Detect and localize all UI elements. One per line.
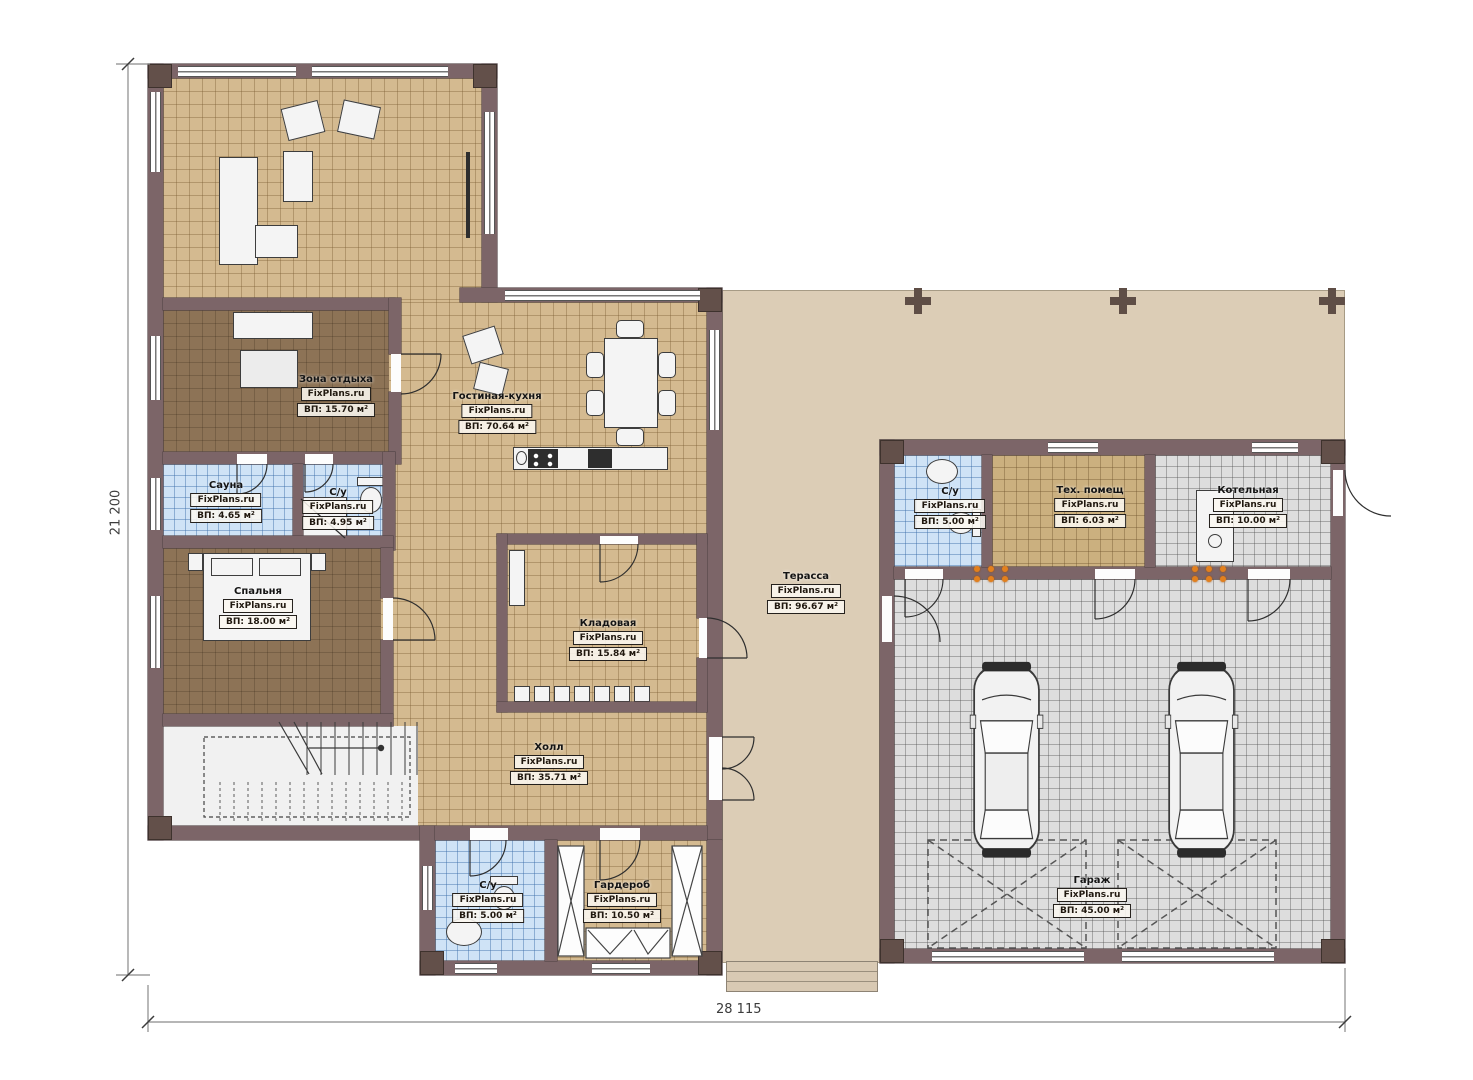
room-area: ВП: 5.00 м² (452, 909, 524, 923)
pillow (259, 558, 301, 576)
wall (497, 534, 507, 712)
room-label-tech: Тех. помещ FixPlans.ru ВП: 6.03 м² (1054, 485, 1126, 528)
sink (516, 451, 527, 465)
wall (163, 298, 395, 310)
room-label-bedroom: Спальня FixPlans.ru ВП: 18.00 м² (219, 586, 297, 629)
shelf (634, 686, 650, 702)
radiator-indicator (974, 566, 1008, 582)
column (473, 64, 497, 88)
window (932, 951, 1084, 962)
door-opening (882, 596, 892, 642)
room-label-hall: Холл FixPlans.ru ВП: 35.71 м² (510, 742, 588, 785)
brand-watermark: FixPlans.ru (1213, 498, 1284, 512)
window (1122, 951, 1274, 962)
brand-watermark: FixPlans.ru (191, 493, 262, 507)
room-name: С/у (452, 880, 524, 891)
nightstand (311, 553, 326, 571)
wall (1145, 455, 1155, 567)
room-name: Котельная (1209, 485, 1287, 496)
boiler-dial (1208, 534, 1222, 548)
door-opening (600, 828, 640, 840)
door-opening (600, 536, 638, 544)
brand-watermark: FixPlans.ru (1057, 888, 1128, 902)
window (592, 963, 650, 974)
brand-watermark: FixPlans.ru (303, 500, 374, 514)
chair (658, 390, 676, 416)
floor-plan-canvas: Зона отдыха FixPlans.ru ВП: 15.70 м² Гос… (0, 0, 1473, 1080)
room-area: ВП: 18.00 м² (219, 615, 297, 629)
door-opening (905, 569, 943, 579)
floor-living-top (163, 78, 482, 302)
chair (586, 352, 604, 378)
room-area: ВП: 15.70 м² (297, 403, 375, 417)
terrace-column (1110, 288, 1136, 314)
chair (616, 320, 644, 338)
floor-terrace-strip (722, 439, 880, 963)
room-name: Спальня (219, 586, 297, 597)
column (148, 64, 172, 88)
wall (163, 714, 393, 726)
coffee-table (283, 151, 313, 202)
column (698, 951, 722, 975)
door-opening (305, 454, 333, 464)
column (1321, 440, 1345, 464)
brand-watermark: FixPlans.ru (223, 599, 294, 613)
window (1252, 442, 1298, 453)
pillow (211, 558, 253, 576)
window (505, 290, 700, 301)
shelf (594, 686, 610, 702)
room-label-living: Гостиная-кухня FixPlans.ru ВП: 70.64 м² (452, 391, 541, 434)
wall (148, 64, 163, 840)
column (698, 288, 722, 312)
room-area: ВП: 15.84 м² (569, 647, 647, 661)
stove (528, 449, 558, 468)
wall (163, 452, 395, 464)
wall (697, 534, 707, 618)
room-name: Сауна (190, 480, 262, 491)
dimension-width-label: 28 115 (716, 1002, 762, 1017)
room-area: ВП: 6.03 м² (1054, 514, 1126, 528)
dining-table (604, 338, 658, 428)
room-label-zona: Зона отдыха FixPlans.ru ВП: 15.70 м² (297, 374, 375, 417)
oven (588, 449, 612, 468)
shelf (614, 686, 630, 702)
radiator-indicator (1192, 566, 1226, 582)
door-opening (709, 737, 722, 800)
room-name: Кладовая (569, 618, 647, 629)
terrace-column (1319, 288, 1345, 314)
room-label-sauna: Сауна FixPlans.ru ВП: 4.65 м² (190, 480, 262, 523)
shelf (574, 686, 590, 702)
terrace-column (905, 288, 931, 314)
room-label-terrace: Терасса FixPlans.ru ВП: 96.67 м² (767, 571, 845, 614)
door-opening (699, 618, 707, 658)
room-label-garage: Гараж FixPlans.ru ВП: 45.00 м² (1053, 875, 1131, 918)
chair (658, 352, 676, 378)
column (420, 951, 444, 975)
room-area: ВП: 70.64 м² (458, 420, 536, 434)
entry-porch (726, 961, 878, 992)
column (880, 939, 904, 963)
window (1048, 442, 1098, 453)
wall (389, 298, 401, 354)
room-area: ВП: 10.00 м² (1209, 514, 1287, 528)
dimension-height-label: 21 200 (108, 490, 123, 536)
door-opening (1333, 470, 1343, 516)
room-area: ВП: 96.67 м² (767, 600, 845, 614)
brand-watermark: FixPlans.ru (915, 499, 986, 513)
room-area: ВП: 45.00 м² (1053, 904, 1131, 918)
brand-watermark: FixPlans.ru (453, 893, 524, 907)
wall (545, 840, 557, 961)
wall (163, 536, 393, 548)
room-name: Холл (510, 742, 588, 753)
room-label-boiler: Котельная FixPlans.ru ВП: 10.00 м² (1209, 485, 1287, 528)
brand-watermark: FixPlans.ru (771, 584, 842, 598)
room-label-storage: Кладовая FixPlans.ru ВП: 15.84 м² (569, 618, 647, 661)
wall (381, 548, 393, 598)
door-opening (1248, 569, 1290, 579)
tv (466, 152, 470, 238)
room-name: Гардероб (583, 880, 661, 891)
table (240, 350, 298, 388)
wall (1331, 440, 1345, 963)
window (422, 866, 433, 910)
room-label-wc3: С/у FixPlans.ru ВП: 5.00 м² (914, 486, 986, 529)
room-label-wc1: С/у FixPlans.ru ВП: 4.95 м² (302, 487, 374, 530)
floor-stairs (163, 726, 418, 826)
shelf (554, 686, 570, 702)
sofa (219, 157, 258, 265)
window (312, 66, 448, 77)
door-opening (470, 828, 508, 840)
room-name: Гараж (1053, 875, 1131, 886)
column (1321, 939, 1345, 963)
brand-watermark: FixPlans.ru (462, 404, 533, 418)
room-name: Тех. помещ (1054, 485, 1126, 496)
shelf (509, 550, 525, 606)
brand-watermark: FixPlans.ru (587, 893, 658, 907)
nightstand (188, 553, 203, 571)
room-area: ВП: 10.50 м² (583, 909, 661, 923)
room-name: Зона отдыха (297, 374, 375, 385)
room-name: Гостиная-кухня (452, 391, 541, 402)
chair (586, 390, 604, 416)
column (148, 816, 172, 840)
brand-watermark: FixPlans.ru (514, 755, 585, 769)
window (150, 596, 161, 668)
wall (880, 440, 894, 963)
room-area: ВП: 4.95 м² (302, 516, 374, 530)
room-area: ВП: 4.65 м² (190, 509, 262, 523)
brand-watermark: FixPlans.ru (1055, 498, 1126, 512)
wall (497, 702, 707, 712)
door-opening (237, 454, 267, 464)
brand-watermark: FixPlans.ru (301, 387, 372, 401)
chair (616, 428, 644, 446)
sink (926, 459, 958, 484)
room-name: Терасса (767, 571, 845, 582)
room-label-wardrobe: Гардероб FixPlans.ru ВП: 10.50 м² (583, 880, 661, 923)
sofa (233, 312, 313, 339)
room-label-wc2: С/у FixPlans.ru ВП: 5.00 м² (452, 880, 524, 923)
door-opening (383, 598, 393, 640)
window (709, 330, 720, 430)
door-opening (1095, 569, 1135, 579)
wall (148, 826, 435, 840)
floor-terrace-band (722, 290, 1345, 440)
shelf (534, 686, 550, 702)
window (150, 336, 161, 400)
wall (697, 658, 707, 712)
sofa (255, 225, 298, 258)
window (150, 478, 161, 530)
toilet-tank (357, 477, 385, 486)
room-name: С/у (914, 486, 986, 497)
shelf (514, 686, 530, 702)
window (178, 66, 296, 77)
window (455, 963, 497, 974)
door-opening (391, 354, 401, 392)
room-area: ВП: 35.71 м² (510, 771, 588, 785)
window (150, 92, 161, 172)
room-area: ВП: 5.00 м² (914, 515, 986, 529)
window (484, 112, 495, 234)
column (880, 440, 904, 464)
brand-watermark: FixPlans.ru (573, 631, 644, 645)
room-name: С/у (302, 487, 374, 498)
